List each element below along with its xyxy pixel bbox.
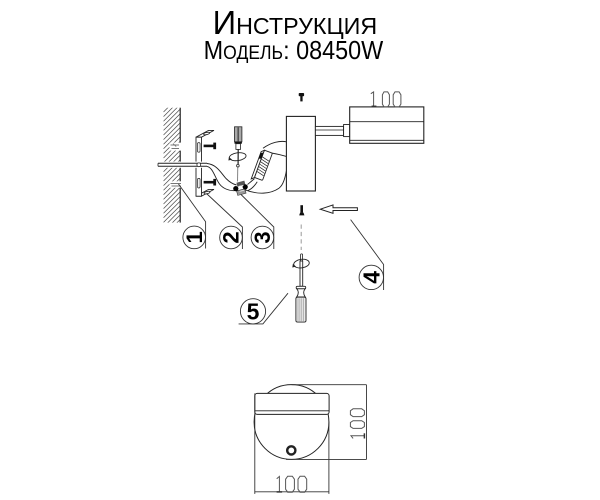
svg-text:5: 5 bbox=[247, 299, 260, 325]
svg-text:1: 1 bbox=[182, 231, 207, 243]
svg-text:2: 2 bbox=[219, 231, 244, 243]
svg-text:4: 4 bbox=[358, 271, 384, 284]
svg-text:3: 3 bbox=[250, 231, 275, 243]
